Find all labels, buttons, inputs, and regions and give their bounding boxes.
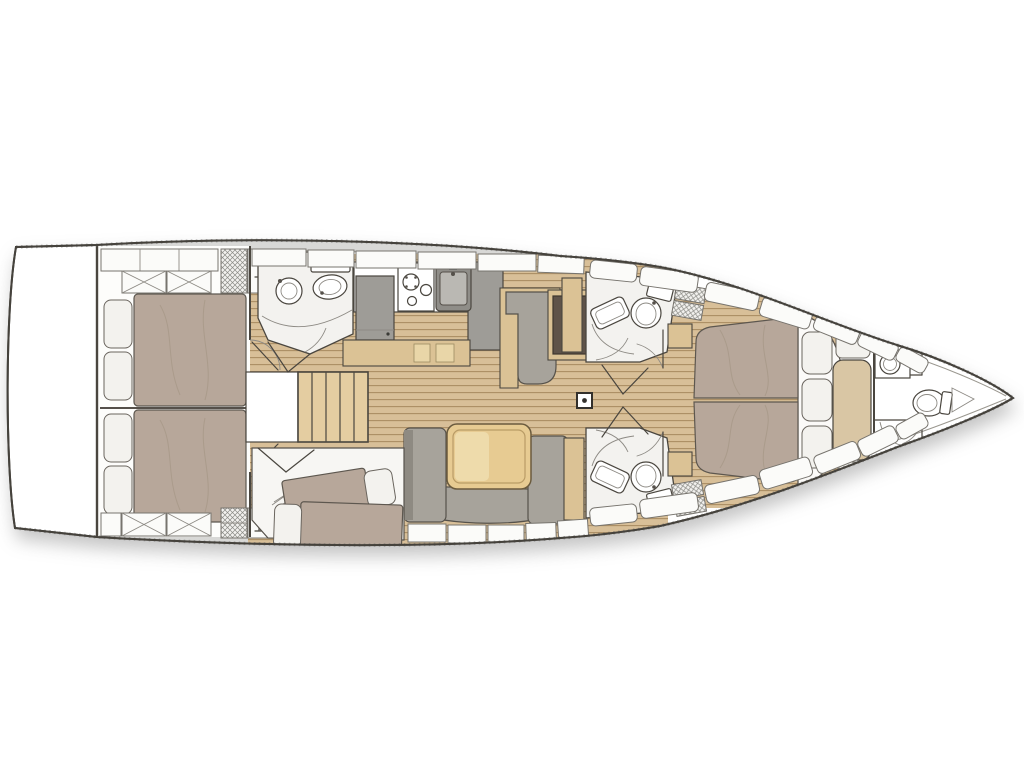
- sofa-shadow: [404, 430, 413, 520]
- companionway: [246, 372, 368, 442]
- third-cabin-bed-lower: [273, 501, 403, 555]
- galley-sink: [436, 263, 471, 311]
- aft-lockers-top: [101, 249, 270, 293]
- aft-cabin-starboard-bed: [104, 410, 246, 522]
- bow-toilet: [913, 390, 952, 416]
- shelf-cabinet: [221, 249, 247, 293]
- saloon-sofa-right: [528, 436, 568, 524]
- yacht-floorplan-canvas: [0, 0, 1024, 768]
- saloon: [404, 424, 584, 524]
- third-cabin: [252, 448, 404, 555]
- pillow: [104, 414, 132, 462]
- galley-tall-cabinet: [468, 262, 503, 350]
- nightstand: [668, 324, 692, 348]
- mast-post: [577, 393, 592, 408]
- nightstand: [668, 452, 692, 476]
- pillow: [104, 466, 132, 514]
- wardrobe: [562, 278, 582, 352]
- saloon-table: [447, 424, 531, 489]
- aft-lockers-bottom: [101, 508, 270, 538]
- companionway-landing: [246, 372, 298, 442]
- stove: [398, 263, 434, 311]
- floorplan-svg: [0, 0, 1024, 768]
- headboard-cushion: [802, 332, 832, 374]
- forward-bed-top: [694, 318, 798, 398]
- wardrobe: [564, 438, 584, 520]
- pillow: [104, 300, 132, 348]
- headboard-cushion: [802, 379, 832, 421]
- companionway-stairs: [298, 372, 368, 442]
- pillow: [104, 352, 132, 400]
- galley-peninsula: [343, 340, 470, 366]
